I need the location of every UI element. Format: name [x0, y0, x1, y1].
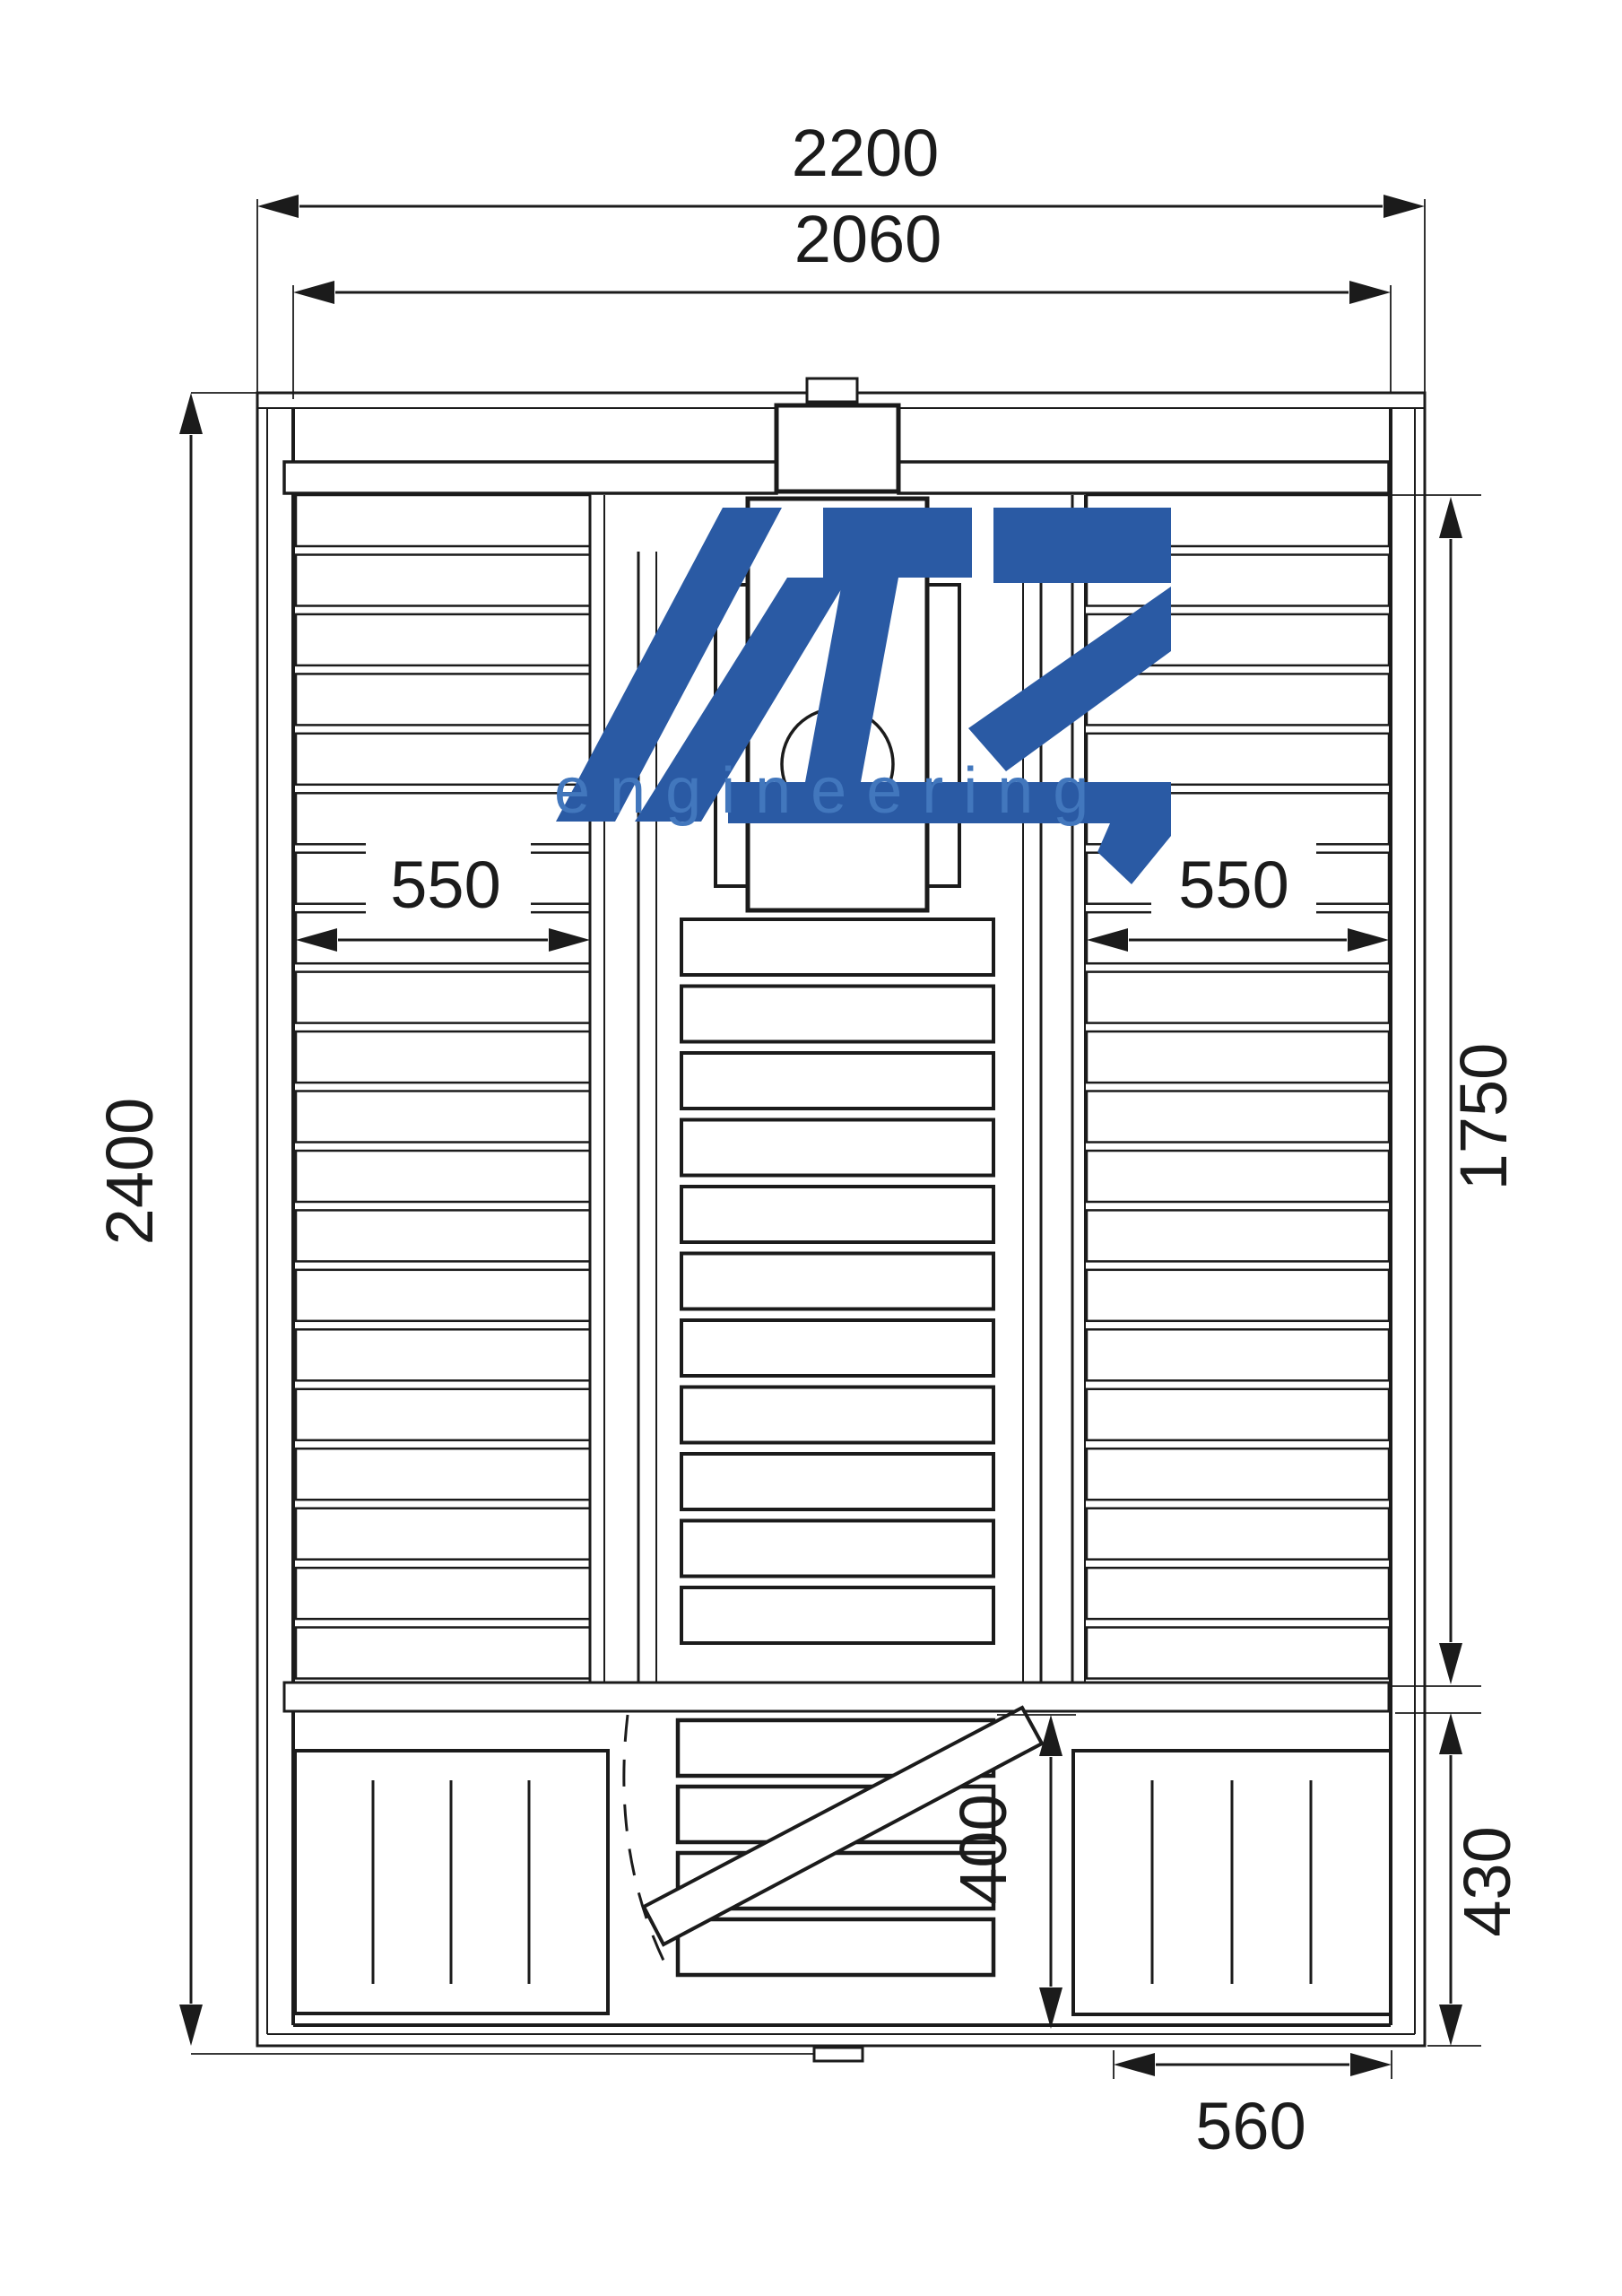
- bench-slat: [1087, 1628, 1389, 1679]
- bench-slat: [296, 614, 590, 665]
- top-vent-tab: [807, 378, 857, 402]
- dimension-inner-width: 2060: [293, 202, 1391, 304]
- logo-s-mid: [968, 587, 1171, 771]
- bench-slat: [296, 1509, 590, 1560]
- dimension-lower-bench-width: 560: [1114, 2053, 1392, 2163]
- bench-slat: [296, 674, 590, 725]
- bench-slat: [296, 1568, 590, 1619]
- bench-slat: [296, 1448, 590, 1500]
- bench-slat: [296, 1031, 590, 1083]
- bench-slat: [681, 1454, 993, 1509]
- bench-slat: [681, 987, 993, 1042]
- threshold-tab: [814, 2048, 863, 2061]
- dim-label-430: 430: [1450, 1826, 1524, 1936]
- top-rail-right-segment: [898, 462, 1389, 493]
- dim-label-2200: 2200: [792, 116, 940, 190]
- bench-slat: [1087, 972, 1389, 1023]
- dim-label-560: 560: [1195, 2089, 1305, 2163]
- dimension-lower-zone-depth: 430: [1439, 1713, 1524, 2046]
- bench-slat: [678, 1919, 993, 1975]
- bench-slat: [296, 1210, 590, 1261]
- bench-slat: [1087, 1210, 1389, 1261]
- bench-slat: [1087, 1568, 1389, 1619]
- left-bench-slats: [296, 495, 590, 1679]
- bench-slat: [296, 1329, 590, 1380]
- bench-slat: [1087, 1329, 1389, 1380]
- bench-slat: [296, 1389, 590, 1440]
- bench-slat: [681, 1053, 993, 1109]
- bench-slat: [681, 1187, 993, 1242]
- bench-slat: [681, 1587, 993, 1643]
- dim-label-550-left: 550: [390, 848, 500, 922]
- top-rail-left-segment: [284, 462, 776, 493]
- bench-slat: [1087, 1270, 1389, 1321]
- bench-slat: [296, 793, 590, 844]
- bench-slat: [1087, 1509, 1389, 1560]
- floor-plan-drawing: 2200 2060 2400 1750 430 400: [0, 0, 1622, 2296]
- center-bench-slats: [681, 919, 993, 1643]
- bench-slat: [296, 555, 590, 606]
- logo-subtitle: engineering: [554, 755, 1108, 827]
- bottom-rail: [284, 1683, 1389, 1711]
- dim-label-1750: 1750: [1446, 1043, 1521, 1191]
- bench-slat: [681, 1387, 993, 1443]
- dim-label-2060: 2060: [794, 202, 942, 276]
- dimension-bench-depth: 1750: [1439, 497, 1521, 1684]
- dimension-overall-depth: 2400: [92, 393, 203, 2046]
- chimney-block: [776, 405, 898, 491]
- bench-slat: [296, 1628, 590, 1679]
- bench-slat: [1087, 674, 1389, 725]
- bench-slat: [296, 1091, 590, 1143]
- dimension-left-bench-width: 550: [296, 843, 590, 952]
- dim-label-2400: 2400: [92, 1098, 167, 1246]
- logo-s-top: [993, 508, 1171, 583]
- bench-slat: [681, 1120, 993, 1176]
- bench-slat: [1087, 1151, 1389, 1202]
- bench-slat: [296, 495, 590, 546]
- dim-label-400: 400: [946, 1794, 1020, 1904]
- bench-slat: [296, 1151, 590, 1202]
- bench-slat: [296, 972, 590, 1023]
- bench-slat: [296, 734, 590, 785]
- stove-right-wing: [927, 585, 959, 886]
- bench-slat: [1087, 1448, 1389, 1500]
- bench-slat: [681, 1521, 993, 1577]
- blueprint-page: 2200 2060 2400 1750 430 400: [0, 0, 1622, 2296]
- dim-label-550-right: 550: [1178, 848, 1288, 922]
- bench-slat: [1087, 1091, 1389, 1143]
- bench-slat: [1087, 734, 1389, 785]
- bench-slat: [1087, 1031, 1389, 1083]
- bench-slat: [296, 1270, 590, 1321]
- bench-slat: [681, 1254, 993, 1309]
- bench-slat: [681, 1320, 993, 1376]
- bench-slat: [1087, 1389, 1389, 1440]
- bench-slat: [681, 919, 993, 975]
